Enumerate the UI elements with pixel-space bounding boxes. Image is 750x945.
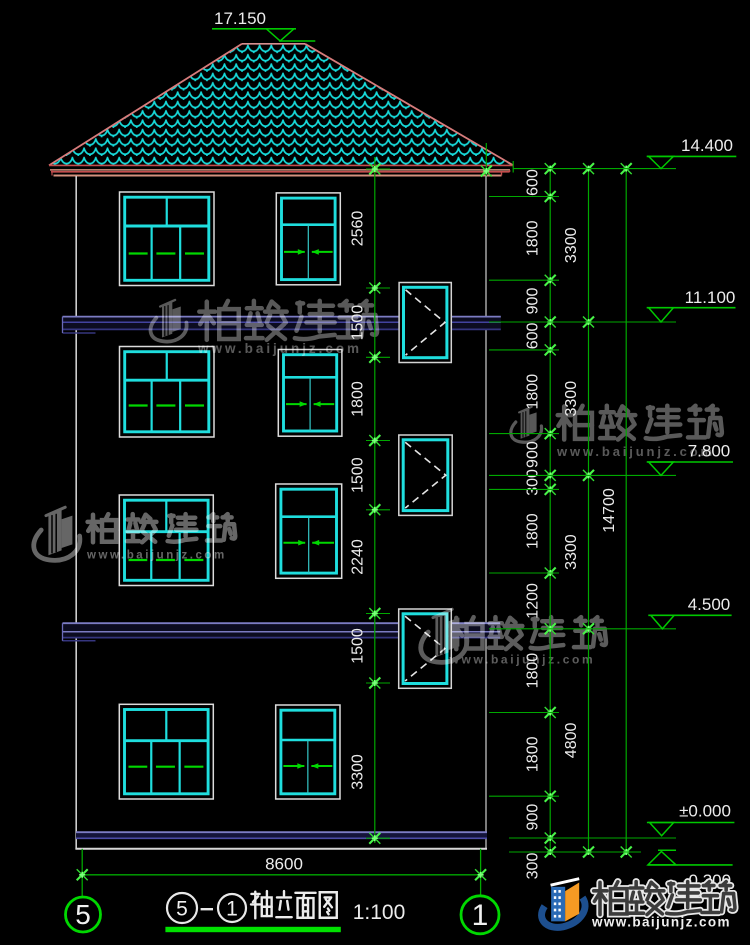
svg-text:±0.000: ±0.000 xyxy=(679,802,731,821)
svg-text:4800: 4800 xyxy=(563,723,580,759)
svg-text:www.baijunjz.com: www.baijunjz.com xyxy=(449,653,596,667)
svg-text:900: 900 xyxy=(525,441,542,468)
svg-text:600: 600 xyxy=(525,169,542,196)
svg-text:900: 900 xyxy=(525,288,542,315)
svg-text:8600: 8600 xyxy=(265,855,303,874)
svg-text:600: 600 xyxy=(525,322,542,349)
svg-text:4.500: 4.500 xyxy=(688,595,731,614)
svg-text:3300: 3300 xyxy=(563,227,580,263)
svg-text:5: 5 xyxy=(176,898,188,921)
svg-text:2560: 2560 xyxy=(350,211,367,247)
svg-text:www.baijunjz.com: www.baijunjz.com xyxy=(197,341,362,356)
svg-text:2240: 2240 xyxy=(350,539,367,575)
svg-text:14700: 14700 xyxy=(601,488,618,533)
svg-text:1500: 1500 xyxy=(350,457,367,493)
svg-text:1500: 1500 xyxy=(350,305,367,341)
svg-text:5: 5 xyxy=(75,899,91,930)
svg-text:1800: 1800 xyxy=(525,513,542,549)
svg-text:1800: 1800 xyxy=(525,220,542,256)
svg-text:www.baijunjz.com: www.baijunjz.com xyxy=(591,915,731,930)
svg-text:900: 900 xyxy=(525,804,542,831)
svg-text:1800: 1800 xyxy=(525,653,542,689)
svg-text:1800: 1800 xyxy=(525,736,542,772)
svg-text:3300: 3300 xyxy=(563,534,580,570)
svg-text:1200: 1200 xyxy=(525,583,542,619)
svg-text:3300: 3300 xyxy=(350,754,367,790)
svg-text:300: 300 xyxy=(525,853,542,880)
svg-text:www.baijunjz.com: www.baijunjz.com xyxy=(86,550,227,562)
svg-text:1: 1 xyxy=(472,899,489,932)
svg-text:1500: 1500 xyxy=(350,628,367,664)
svg-text:1800: 1800 xyxy=(350,381,367,417)
svg-text:17.150: 17.150 xyxy=(214,9,266,28)
svg-text:1: 1 xyxy=(226,898,238,921)
svg-text:1:100: 1:100 xyxy=(353,901,406,924)
svg-text:14.400: 14.400 xyxy=(681,136,733,155)
svg-text:7.800: 7.800 xyxy=(688,442,731,461)
svg-text:11.100: 11.100 xyxy=(685,288,736,307)
svg-text:1800: 1800 xyxy=(525,374,542,410)
svg-text:300: 300 xyxy=(525,469,542,496)
svg-text:3300: 3300 xyxy=(563,381,580,417)
